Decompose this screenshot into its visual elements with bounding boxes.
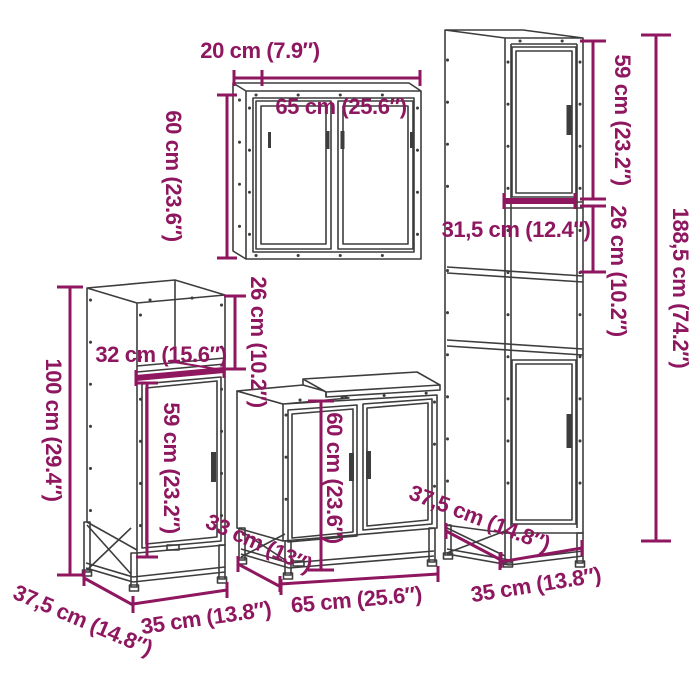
diagram-canvas: 20 cm (7.9″) 65 cm (25.6″) 60 cm (23.6″)… [0,0,700,700]
dim-tall-total-height-line [641,35,671,541]
label-sink-height: 60 cm (23.6″) [322,412,347,543]
side-cabinet-drawing [83,280,227,591]
dimension-diagram: 20 cm (7.9″) 65 cm (25.6″) 60 cm (23.6″)… [0,0,700,700]
label-tall-compartment-height: 26 cm (10.2″) [606,205,631,336]
label-sink-width: 65 cm (25.6″) [290,581,423,617]
label-wall-width: 65 cm (25.6″) [275,94,406,119]
tall-cabinet-drawing [444,30,585,567]
dim-tall-upper-door-line [580,41,606,199]
label-side-door-height: 59 cm (23.2″) [159,402,184,533]
label-side-total-height: 100 cm (29.4″) [41,358,66,501]
label-tall-inner-width: 31,5 cm (12.4″) [442,217,591,242]
side-cabinet-door-handle [211,452,216,482]
tall-top-door-handle [567,105,572,135]
label-tall-upper-door-height: 59 cm (23.2″) [610,54,635,185]
label-side-top-width: 32 cm (15.6″) [95,342,226,367]
label-side-compartment-height: 26 cm (10.2″) [246,276,271,407]
tall-bottom-door-handle [567,414,572,448]
label-tall-width: 35 cm (13.8″) [469,562,603,607]
label-wall-depth: 20 cm (7.9″) [200,38,320,63]
label-tall-total-height: 188,5 cm (74.2″) [668,208,693,369]
label-side-width: 35 cm (13.8″) [139,596,273,639]
dim-side-compartment-line [224,296,246,369]
label-wall-height: 60 cm (23.6″) [161,110,186,241]
